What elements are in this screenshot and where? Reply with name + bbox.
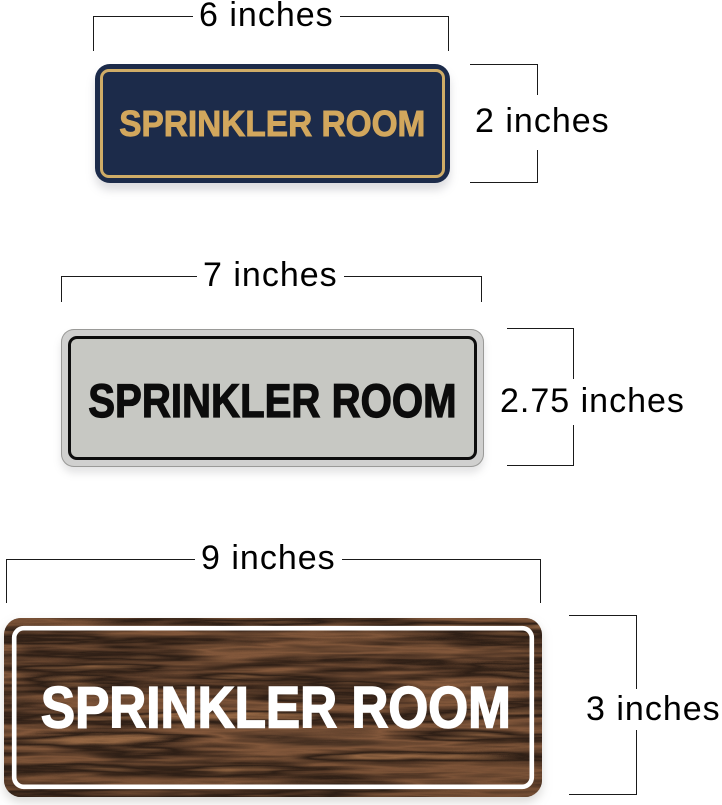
svg-text:SPRINKLER ROOM: SPRINKLER ROOM (41, 676, 511, 741)
